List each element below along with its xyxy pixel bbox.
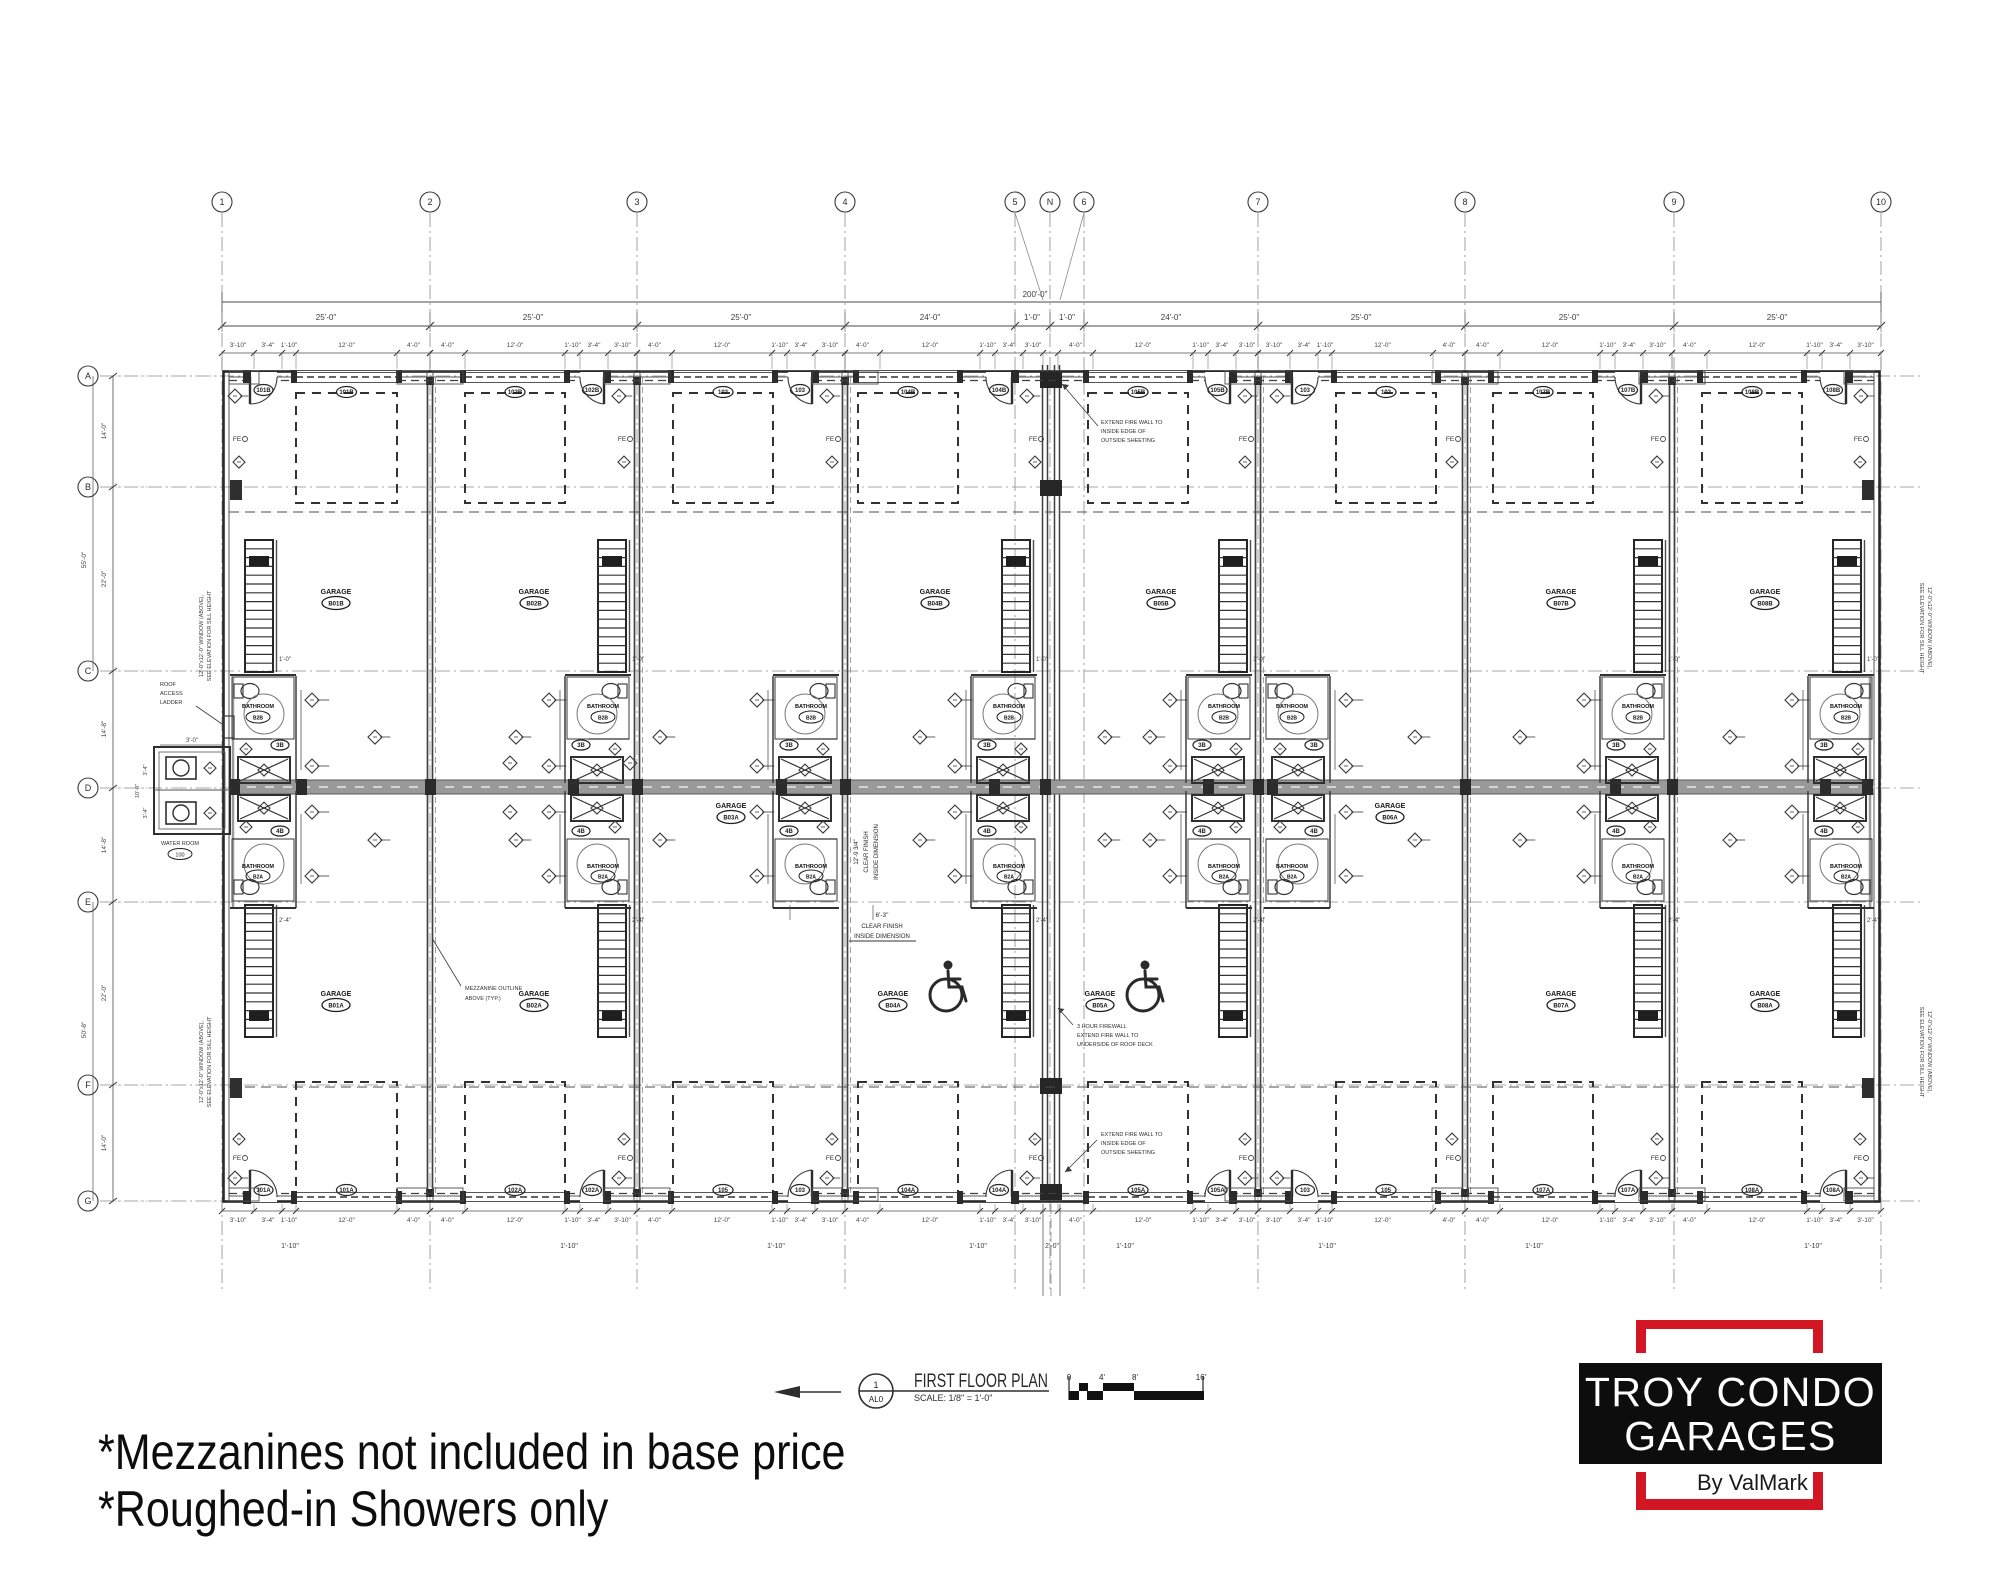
svg-text:104B: 104B	[992, 388, 1007, 394]
svg-text:GARAGE: GARAGE	[321, 589, 352, 596]
svg-text:BATHROOM: BATHROOM	[1622, 704, 1654, 710]
svg-text:3: 3	[634, 197, 639, 207]
svg-text:1'-10": 1'-10"	[560, 1243, 578, 1250]
svg-text:3'-10": 3'-10"	[1239, 1217, 1256, 1224]
svg-text:107B: 107B	[1536, 390, 1551, 396]
svg-text:SEE ELEVATION FOR SILL HEIGHT: SEE ELEVATION FOR SILL HEIGHT	[207, 1016, 213, 1107]
svg-text:105: 105	[1381, 1188, 1392, 1194]
svg-text:3'-10": 3'-10"	[822, 1217, 839, 1224]
svg-text:105: 105	[718, 1188, 729, 1194]
svg-text:1'-10": 1'-10"	[1599, 342, 1616, 349]
svg-text:12'-0": 12'-0"	[922, 342, 939, 349]
svg-text:MEZZANINE OUTLINE: MEZZANINE OUTLINE	[465, 986, 522, 992]
svg-text:GARAGE: GARAGE	[1546, 991, 1577, 998]
svg-text:10: 10	[1876, 197, 1886, 207]
svg-text:8': 8'	[1132, 1373, 1138, 1382]
svg-text:102B: 102B	[508, 390, 523, 396]
svg-text:3'-4": 3'-4"	[795, 342, 809, 349]
svg-text:3'-4": 3'-4"	[1298, 1217, 1312, 1224]
svg-text:3'-10": 3'-10"	[614, 1217, 631, 1224]
svg-text:1: 1	[219, 197, 224, 207]
svg-text:B2B: B2B	[253, 716, 263, 722]
svg-text:FE: FE	[826, 436, 835, 443]
svg-text:3'-10": 3'-10"	[230, 1217, 247, 1224]
svg-text:24'-0": 24'-0"	[920, 313, 941, 322]
svg-text:INSIDE DIMENSION: INSIDE DIMENSION	[854, 934, 910, 940]
svg-text:3'-4": 3'-4"	[1298, 342, 1312, 349]
svg-text:1'-10": 1'-10"	[969, 1243, 987, 1250]
svg-text:4'-0": 4'-0"	[407, 1217, 421, 1224]
svg-text:FE: FE	[826, 1155, 835, 1162]
svg-text:BATHROOM: BATHROOM	[587, 704, 619, 710]
svg-text:BATHROOM: BATHROOM	[993, 864, 1025, 870]
svg-text:4'-0": 4'-0"	[856, 1217, 870, 1224]
svg-text:25'-0": 25'-0"	[1767, 313, 1788, 322]
svg-text:4'-0": 4'-0"	[648, 342, 662, 349]
svg-text:FE: FE	[618, 436, 627, 443]
svg-text:3'-4": 3'-4"	[1003, 1217, 1017, 1224]
svg-text:12'-0": 12'-0"	[1135, 1217, 1152, 1224]
svg-text:1'-10": 1'-10"	[979, 1217, 996, 1224]
svg-text:4B: 4B	[1820, 829, 1828, 835]
svg-text:B2B: B2B	[1219, 716, 1229, 722]
svg-text:101A: 101A	[339, 1188, 354, 1194]
svg-text:3B: 3B	[1820, 743, 1828, 749]
svg-text:SEE ELEVATION FOR SILL HEIGHT: SEE ELEVATION FOR SILL HEIGHT	[207, 590, 213, 681]
svg-text:B08B: B08B	[1757, 602, 1773, 608]
svg-text:FE: FE	[233, 1155, 242, 1162]
svg-text:1'-10": 1'-10"	[281, 342, 298, 349]
svg-text:4'-0": 4'-0"	[1443, 1217, 1457, 1224]
svg-text:4'-0": 4'-0"	[1683, 342, 1697, 349]
svg-text:108B: 108B	[1826, 388, 1841, 394]
svg-text:A: A	[85, 371, 91, 381]
svg-text:25'-0": 25'-0"	[731, 313, 752, 322]
svg-text:FE: FE	[1239, 1155, 1248, 1162]
svg-text:24'-0": 24'-0"	[1161, 313, 1182, 322]
svg-text:4'-0": 4'-0"	[1476, 1217, 1490, 1224]
svg-text:GARAGE: GARAGE	[1546, 589, 1577, 596]
svg-text:B06A: B06A	[1382, 816, 1398, 822]
svg-text:102: 102	[1381, 390, 1392, 396]
svg-text:AL0: AL0	[869, 1395, 884, 1404]
svg-text:3'-10": 3'-10"	[230, 342, 247, 349]
svg-text:GARAGE: GARAGE	[1750, 589, 1781, 596]
svg-text:3B: 3B	[577, 743, 585, 749]
svg-text:BATHROOM: BATHROOM	[1276, 864, 1308, 870]
svg-text:12'-0": 12'-0"	[714, 1217, 731, 1224]
svg-text:B04B: B04B	[927, 602, 943, 608]
svg-text:1'-10": 1'-10"	[767, 1243, 785, 1250]
svg-text:104A: 104A	[901, 1188, 916, 1194]
svg-text:3'-10": 3'-10"	[1239, 342, 1256, 349]
svg-text:12'-0": 12'-0"	[1374, 1217, 1391, 1224]
svg-text:12'-0": 12'-0"	[714, 342, 731, 349]
svg-text:12'-0": 12'-0"	[1135, 342, 1152, 349]
svg-text:B03A: B03A	[723, 816, 739, 822]
svg-text:B04A: B04A	[885, 1004, 901, 1010]
svg-text:10'-0": 10'-0"	[135, 784, 141, 798]
svg-text:BATHROOM: BATHROOM	[1208, 864, 1240, 870]
svg-text:4'-0": 4'-0"	[1069, 1217, 1083, 1224]
svg-text:100: 100	[175, 853, 184, 859]
svg-text:105A: 105A	[1131, 1188, 1146, 1194]
svg-text:B: B	[85, 482, 91, 492]
svg-text:1'-0": 1'-0"	[279, 657, 291, 663]
svg-text:3B: 3B	[276, 743, 284, 749]
svg-text:3'-4": 3'-4"	[1623, 1217, 1637, 1224]
svg-text:3B: 3B	[785, 743, 793, 749]
svg-text:3'-10": 3'-10"	[1266, 1217, 1283, 1224]
svg-text:107A: 107A	[1621, 1188, 1636, 1194]
svg-text:LADDER: LADDER	[160, 700, 182, 706]
svg-text:3'-10": 3'-10"	[1649, 342, 1666, 349]
svg-text:105B: 105B	[1131, 390, 1146, 396]
svg-text:BATHROOM: BATHROOM	[1208, 704, 1240, 710]
svg-text:4B: 4B	[1612, 829, 1620, 835]
svg-text:2'-4": 2'-4"	[632, 918, 644, 924]
svg-text:6: 6	[1081, 197, 1086, 207]
svg-text:INSIDE EDGE OF: INSIDE EDGE OF	[1101, 429, 1146, 435]
svg-text:108A: 108A	[1826, 1188, 1841, 1194]
svg-text:OUTSIDE SHEETING: OUTSIDE SHEETING	[1101, 1150, 1155, 1156]
svg-text:107B: 107B	[1621, 388, 1636, 394]
svg-text:1'-10": 1'-10"	[771, 1217, 788, 1224]
svg-text:GARAGE: GARAGE	[321, 991, 352, 998]
svg-text:B2A: B2A	[1219, 875, 1229, 881]
svg-text:22'-0": 22'-0"	[101, 570, 108, 587]
svg-text:4B: 4B	[276, 829, 284, 835]
svg-text:EXTEND FIRE WALL TO: EXTEND FIRE WALL TO	[1101, 1132, 1163, 1138]
svg-text:BATHROOM: BATHROOM	[587, 864, 619, 870]
svg-text:GARAGE: GARAGE	[878, 991, 909, 998]
svg-text:12'-0": 12'-0"	[507, 342, 524, 349]
svg-text:108A: 108A	[1745, 1188, 1760, 1194]
svg-text:BATHROOM: BATHROOM	[1830, 864, 1862, 870]
svg-text:B2A: B2A	[253, 875, 263, 881]
svg-text:12'-0"x12'-0" WINDOW (ABOVE),: 12'-0"x12'-0" WINDOW (ABOVE),	[1926, 587, 1932, 670]
svg-text:14'-0": 14'-0"	[101, 422, 108, 439]
svg-text:SEE ELEVATION FOR SILL HEIGHT: SEE ELEVATION FOR SILL HEIGHT	[1918, 583, 1924, 674]
svg-text:1'-0": 1'-0"	[1059, 313, 1075, 322]
svg-text:102A: 102A	[508, 1188, 523, 1194]
svg-text:3'-10": 3'-10"	[1649, 1217, 1666, 1224]
svg-text:GARAGE: GARAGE	[1085, 991, 1116, 998]
svg-text:ACCESS: ACCESS	[160, 691, 183, 697]
svg-text:3'-4": 3'-4"	[1003, 342, 1017, 349]
svg-text:3'-4": 3'-4"	[1830, 1217, 1844, 1224]
svg-text:101B: 101B	[339, 390, 354, 396]
svg-text:3 HOUR FIREWALL: 3 HOUR FIREWALL	[1077, 1024, 1127, 1030]
svg-text:1'-10": 1'-10"	[564, 342, 581, 349]
svg-text:3'-10": 3'-10"	[1857, 1217, 1874, 1224]
svg-text:4'-0": 4'-0"	[441, 342, 455, 349]
svg-text:1'-10": 1'-10"	[1525, 1243, 1543, 1250]
svg-text:FE: FE	[233, 436, 242, 443]
svg-text:12'-0": 12'-0"	[338, 1217, 355, 1224]
svg-text:OUTSIDE SHEETING: OUTSIDE SHEETING	[1101, 438, 1155, 444]
svg-text:N: N	[1047, 197, 1054, 207]
svg-text:EXTEND FIRE WALL TO: EXTEND FIRE WALL TO	[1101, 420, 1163, 426]
svg-text:4'-0": 4'-0"	[648, 1217, 662, 1224]
svg-text:3'-10": 3'-10"	[1025, 342, 1042, 349]
svg-text:FE: FE	[1029, 436, 1038, 443]
svg-text:1'-0": 1'-0"	[1036, 657, 1048, 663]
svg-text:103: 103	[1300, 1188, 1311, 1194]
svg-text:FE: FE	[1446, 436, 1455, 443]
svg-text:FIRST FLOOR PLAN: FIRST FLOOR PLAN	[914, 1371, 1048, 1392]
svg-text:2: 2	[427, 197, 432, 207]
svg-text:1'-10": 1'-10"	[1317, 1217, 1334, 1224]
svg-text:B2B: B2B	[1841, 716, 1851, 722]
svg-text:4B: 4B	[1310, 829, 1318, 835]
svg-text:4B: 4B	[785, 829, 793, 835]
svg-text:B2A: B2A	[598, 875, 608, 881]
svg-text:1'-10": 1'-10"	[979, 342, 996, 349]
svg-text:0: 0	[1067, 1373, 1072, 1382]
svg-text:UNDERSIDE OF ROOF DECK: UNDERSIDE OF ROOF DECK	[1077, 1042, 1153, 1048]
svg-text:12'-9 3/4": 12'-9 3/4"	[854, 839, 860, 864]
svg-text:EXTEND FIRE WALL TO: EXTEND FIRE WALL TO	[1077, 1033, 1139, 1039]
svg-text:5: 5	[1012, 197, 1017, 207]
svg-text:B2B: B2B	[806, 716, 816, 722]
svg-text:3'-10": 3'-10"	[614, 342, 631, 349]
svg-text:108B: 108B	[1745, 390, 1760, 396]
svg-text:B2A: B2A	[1633, 875, 1643, 881]
svg-text:1'-10": 1'-10"	[1318, 1243, 1336, 1250]
svg-text:104B: 104B	[901, 390, 916, 396]
svg-text:3'-4": 3'-4"	[588, 1217, 602, 1224]
svg-text:4': 4'	[1099, 1373, 1105, 1382]
svg-text:3'-4": 3'-4"	[262, 342, 276, 349]
svg-text:GARAGE: GARAGE	[920, 589, 951, 596]
svg-text:ABOVE (TYP.): ABOVE (TYP.)	[465, 996, 501, 1002]
svg-text:FE: FE	[618, 1155, 627, 1162]
svg-text:BATHROOM: BATHROOM	[795, 864, 827, 870]
svg-text:105A: 105A	[1210, 1188, 1225, 1194]
svg-text:4'-0": 4'-0"	[1443, 342, 1457, 349]
svg-text:9: 9	[1671, 197, 1676, 207]
svg-text:ROOF: ROOF	[160, 682, 177, 688]
svg-text:103: 103	[1300, 388, 1311, 394]
svg-text:INSIDE EDGE OF: INSIDE EDGE OF	[1101, 1141, 1146, 1147]
svg-text:BATHROOM: BATHROOM	[242, 864, 274, 870]
svg-text:FE: FE	[1239, 436, 1248, 443]
svg-text:BATHROOM: BATHROOM	[1276, 704, 1308, 710]
svg-text:1'-10": 1'-10"	[1806, 342, 1823, 349]
svg-text:B05B: B05B	[1153, 602, 1169, 608]
svg-text:50'-8": 50'-8"	[81, 1021, 88, 1038]
svg-text:12'-0": 12'-0"	[507, 1217, 524, 1224]
svg-text:103: 103	[795, 388, 806, 394]
svg-text:25'-0": 25'-0"	[1559, 313, 1580, 322]
svg-text:BATHROOM: BATHROOM	[1830, 704, 1862, 710]
svg-text:INSIDE DIMENSION: INSIDE DIMENSION	[874, 824, 880, 880]
svg-text:B01B: B01B	[328, 602, 344, 608]
svg-text:102: 102	[718, 390, 729, 396]
svg-text:104A: 104A	[992, 1188, 1007, 1194]
svg-text:4'-0": 4'-0"	[407, 342, 421, 349]
svg-text:4B: 4B	[577, 829, 585, 835]
svg-text:1'-10": 1'-10"	[1192, 342, 1209, 349]
svg-text:CLEAR FINISH: CLEAR FINISH	[864, 831, 870, 872]
svg-text:3'-0": 3'-0"	[186, 738, 198, 744]
svg-text:12'-0": 12'-0"	[338, 342, 355, 349]
svg-text:B2B: B2B	[1633, 716, 1643, 722]
svg-text:B07B: B07B	[1553, 602, 1569, 608]
svg-text:B2A: B2A	[1004, 875, 1014, 881]
svg-text:6'-3": 6'-3"	[876, 912, 890, 919]
svg-text:3'-4": 3'-4"	[1830, 342, 1844, 349]
svg-text:107A: 107A	[1536, 1188, 1551, 1194]
svg-text:8: 8	[1462, 197, 1467, 207]
svg-text:3'-10": 3'-10"	[822, 342, 839, 349]
svg-text:BATHROOM: BATHROOM	[993, 704, 1025, 710]
svg-text:B02B: B02B	[526, 602, 542, 608]
svg-text:3B: 3B	[1612, 743, 1620, 749]
svg-text:B02A: B02A	[526, 1004, 542, 1010]
svg-text:D: D	[85, 783, 92, 793]
svg-text:3'-10": 3'-10"	[1266, 342, 1283, 349]
svg-text:SCALE: 1/8" = 1'-0": SCALE: 1/8" = 1'-0"	[914, 1393, 992, 1403]
svg-text:3'-10": 3'-10"	[1857, 342, 1874, 349]
svg-text:CLEAR FINISH: CLEAR FINISH	[861, 924, 902, 930]
svg-text:105B: 105B	[1210, 388, 1225, 394]
svg-text:1'-10": 1'-10"	[281, 1217, 298, 1224]
svg-text:WATER ROOM: WATER ROOM	[161, 841, 199, 847]
svg-text:1'-0": 1'-0"	[1867, 657, 1879, 663]
svg-text:1'-10": 1'-10"	[281, 1243, 299, 1250]
svg-text:12'-0"x12'-0" WINDOW (ABOVE),: 12'-0"x12'-0" WINDOW (ABOVE),	[199, 1020, 205, 1103]
svg-text:B2A: B2A	[1287, 875, 1297, 881]
svg-text:12'-0": 12'-0"	[1542, 1217, 1559, 1224]
svg-text:B05A: B05A	[1092, 1004, 1108, 1010]
svg-text:4'-0": 4'-0"	[856, 342, 870, 349]
svg-text:3'-10": 3'-10"	[1025, 1217, 1042, 1224]
svg-text:GARAGE: GARAGE	[1375, 803, 1406, 810]
svg-text:FE: FE	[1854, 436, 1863, 443]
svg-text:2'-4": 2'-4"	[1036, 918, 1048, 924]
svg-text:4'-0": 4'-0"	[1476, 342, 1490, 349]
svg-text:102B: 102B	[585, 388, 600, 394]
svg-text:3'-4": 3'-4"	[795, 1217, 809, 1224]
svg-text:1'-10": 1'-10"	[1806, 1217, 1823, 1224]
svg-text:1'-10": 1'-10"	[771, 342, 788, 349]
svg-text:B08A: B08A	[1757, 1004, 1773, 1010]
svg-text:B2B: B2B	[1287, 716, 1297, 722]
svg-text:1'-0": 1'-0"	[1024, 313, 1040, 322]
svg-text:103: 103	[795, 1188, 806, 1194]
svg-text:3'-4": 3'-4"	[588, 342, 602, 349]
svg-text:C: C	[85, 666, 92, 676]
svg-text:14'-8": 14'-8"	[101, 720, 108, 737]
svg-text:FE: FE	[1651, 436, 1660, 443]
svg-text:12'-0": 12'-0"	[1749, 1217, 1766, 1224]
svg-text:2'-4": 2'-4"	[1867, 918, 1879, 924]
svg-text:4'-0": 4'-0"	[1069, 342, 1083, 349]
svg-text:BATHROOM: BATHROOM	[1622, 864, 1654, 870]
svg-text:3'-4": 3'-4"	[143, 764, 149, 775]
svg-text:FE: FE	[1446, 1155, 1455, 1162]
svg-text:4'-0": 4'-0"	[441, 1217, 455, 1224]
svg-text:B01A: B01A	[328, 1004, 344, 1010]
svg-text:FE: FE	[1854, 1155, 1863, 1162]
svg-text:B07A: B07A	[1553, 1004, 1569, 1010]
svg-text:12'-0"x12'-0" WINDOW (ABOVE),: 12'-0"x12'-0" WINDOW (ABOVE),	[199, 594, 205, 677]
svg-text:3'-4": 3'-4"	[1216, 342, 1230, 349]
svg-text:GARAGE: GARAGE	[519, 991, 550, 998]
svg-text:FE: FE	[1651, 1155, 1660, 1162]
svg-text:2'-0": 2'-0"	[1045, 1243, 1059, 1250]
svg-text:1'-10": 1'-10"	[564, 1217, 581, 1224]
svg-text:1'-10": 1'-10"	[1192, 1217, 1209, 1224]
svg-text:1'-10": 1'-10"	[1599, 1217, 1616, 1224]
svg-text:12'-0": 12'-0"	[922, 1217, 939, 1224]
svg-text:B2A: B2A	[806, 875, 816, 881]
svg-text:4: 4	[842, 197, 847, 207]
svg-text:2'-4": 2'-4"	[1253, 918, 1265, 924]
svg-text:4'-0": 4'-0"	[1683, 1217, 1697, 1224]
svg-text:3'-4": 3'-4"	[1216, 1217, 1230, 1224]
svg-text:4B: 4B	[983, 829, 991, 835]
svg-text:12'-0": 12'-0"	[1749, 342, 1766, 349]
svg-text:25'-0": 25'-0"	[316, 313, 337, 322]
svg-text:1'-0": 1'-0"	[1668, 657, 1680, 663]
svg-text:102A: 102A	[585, 1188, 600, 1194]
svg-text:25'-0": 25'-0"	[523, 313, 544, 322]
svg-text:B2B: B2B	[1004, 716, 1014, 722]
svg-text:12'-0"x12'-0" WINDOW (ABOVE),: 12'-0"x12'-0" WINDOW (ABOVE),	[1926, 1011, 1932, 1094]
svg-text:3'-4": 3'-4"	[143, 807, 149, 818]
svg-text:2'-4": 2'-4"	[279, 918, 291, 924]
svg-text:2'-4": 2'-4"	[1668, 918, 1680, 924]
svg-text:1: 1	[873, 1380, 878, 1390]
svg-text:14'-8": 14'-8"	[101, 836, 108, 853]
svg-text:101B: 101B	[256, 388, 271, 394]
svg-text:12'-0": 12'-0"	[1374, 342, 1391, 349]
svg-text:1'-0": 1'-0"	[1253, 657, 1265, 663]
svg-text:BATHROOM: BATHROOM	[242, 704, 274, 710]
svg-text:3'-4": 3'-4"	[262, 1217, 276, 1224]
svg-text:4B: 4B	[1198, 829, 1206, 835]
svg-text:GARAGE: GARAGE	[1146, 589, 1177, 596]
svg-text:7: 7	[1255, 197, 1260, 207]
svg-text:3'-4": 3'-4"	[1623, 342, 1637, 349]
svg-text:B2A: B2A	[1841, 875, 1851, 881]
svg-text:1'-10": 1'-10"	[1804, 1243, 1822, 1250]
svg-text:200'-0": 200'-0"	[1023, 290, 1048, 299]
svg-text:3B: 3B	[1198, 743, 1206, 749]
svg-text:F: F	[85, 1080, 91, 1090]
svg-text:E: E	[85, 897, 91, 907]
svg-text:3B: 3B	[983, 743, 991, 749]
svg-text:1'-0": 1'-0"	[632, 657, 644, 663]
svg-text:55'-0": 55'-0"	[81, 551, 88, 568]
svg-text:3B: 3B	[1310, 743, 1318, 749]
svg-text:14'-0": 14'-0"	[101, 1134, 108, 1151]
svg-text:GARAGE: GARAGE	[519, 589, 550, 596]
svg-text:B2B: B2B	[598, 716, 608, 722]
svg-text:GARAGE: GARAGE	[1750, 991, 1781, 998]
svg-text:1'-10": 1'-10"	[1317, 342, 1334, 349]
svg-text:G: G	[84, 1196, 91, 1206]
svg-text:FE: FE	[1029, 1155, 1038, 1162]
svg-text:25'-0": 25'-0"	[1351, 313, 1372, 322]
svg-text:16': 16'	[1196, 1373, 1207, 1382]
svg-text:1'-10": 1'-10"	[1116, 1243, 1134, 1250]
svg-text:SEE ELEVATION FOR SILL HEIGHT: SEE ELEVATION FOR SILL HEIGHT	[1918, 1007, 1924, 1098]
svg-text:GARAGE: GARAGE	[716, 803, 747, 810]
